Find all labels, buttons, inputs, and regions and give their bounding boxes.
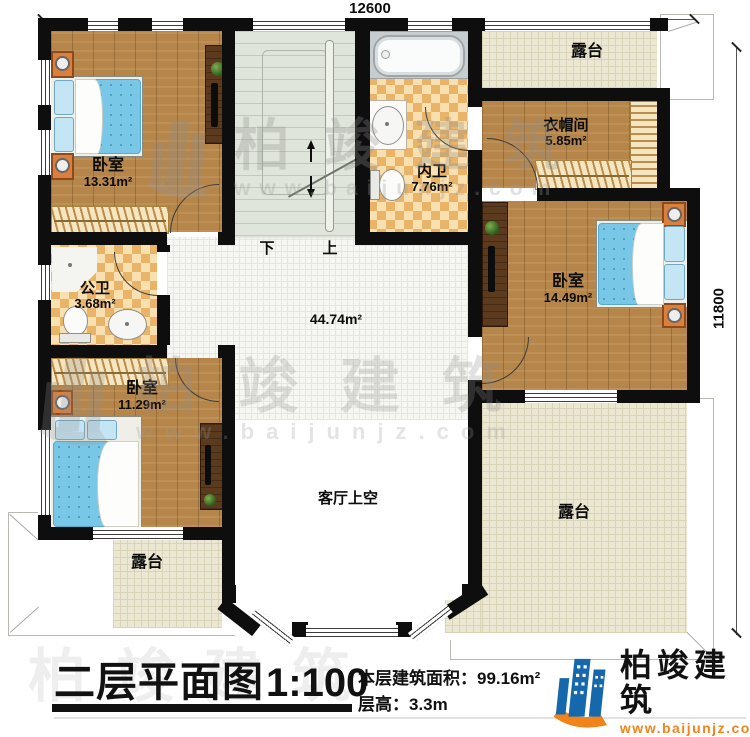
stair-arrow-down: [310, 176, 312, 190]
room-label-cloakroom: 衣帽间 5.85m²: [543, 118, 588, 148]
wardrobe-rod: [54, 372, 166, 374]
sink-drain-icon: [125, 322, 129, 326]
pillow: [54, 80, 74, 115]
room-area: 44.74m²: [310, 312, 362, 327]
plan-scale: 1:100: [266, 661, 368, 706]
room-area: 5.85m²: [543, 134, 588, 148]
stair-rail: [325, 40, 334, 232]
floor-area-label: 本层建筑面积：: [358, 669, 477, 688]
window: [88, 18, 118, 31]
window: [38, 60, 51, 105]
floor-area-value: 99.16m²: [477, 669, 540, 688]
wall-bath-right-lower: [468, 150, 482, 201]
company-name: 柏竣建筑: [620, 648, 750, 718]
window: [525, 390, 617, 403]
wall-innerbath-bottom: [355, 232, 482, 245]
lamp-icon: [667, 207, 682, 222]
stair-up-label: 上: [322, 241, 337, 257]
wall-bedroom-tl-bottom: [218, 232, 235, 245]
room-label-public-bath: 公卫 3.68m²: [74, 281, 115, 311]
stair-opening-outline: [262, 50, 328, 195]
pillow: [664, 264, 685, 300]
company-logo-icon: [545, 654, 620, 730]
floor-area-line: 本层建筑面积：99.16m²: [358, 666, 540, 692]
pillow: [54, 117, 74, 152]
room-name: 衣帽间: [543, 118, 588, 134]
room-area: 14.49m²: [544, 291, 592, 305]
bay-window-front: [306, 625, 398, 637]
wall-void-right: [468, 403, 482, 593]
bay-corner: [462, 584, 482, 596]
wall-bath-right-upper: [468, 31, 482, 107]
monitor-icon: [488, 246, 495, 292]
nightstand: [662, 202, 686, 227]
terrace-tr-wall-post: [650, 18, 668, 31]
terrace-bl-label: 露台: [131, 555, 163, 572]
stair-arrow-up: [310, 148, 312, 162]
monitor-icon: [211, 83, 218, 127]
room-name: 卧室: [84, 158, 132, 175]
plant-icon: [204, 494, 216, 506]
window: [38, 430, 51, 515]
nightstand: [51, 51, 74, 78]
wardrobe-rod: [54, 220, 166, 222]
terrace-br-label: 露台: [558, 505, 590, 522]
wall-bedroom-r-bottom: [617, 390, 700, 403]
nightstand: [662, 303, 686, 328]
floor-height-value: 3.3m: [409, 695, 448, 714]
wall-bedroom-r-left: [468, 201, 482, 337]
pillow: [55, 420, 85, 440]
wall-cloakroom-top: [482, 88, 657, 101]
sink-drain-icon: [385, 122, 389, 126]
void-label: 客厅上空: [318, 491, 378, 507]
wall-stair-bath: [355, 18, 370, 245]
terrace-tr-floor: [482, 31, 657, 88]
wall-cloakroom-right: [657, 88, 670, 195]
company-site: www.baijunjz.com: [620, 721, 750, 736]
window: [38, 265, 51, 300]
plant-icon: [485, 221, 499, 235]
room-name: 露台: [571, 44, 603, 61]
wall-bedroom-r-right: [687, 188, 700, 403]
floor-height-label: 层高：: [358, 695, 409, 714]
terrace-railing: [485, 18, 650, 31]
void-floor: [235, 403, 468, 640]
wall-publicbath-right: [157, 245, 170, 252]
closet-hanging-rail: [535, 160, 632, 190]
title-underline: [52, 704, 352, 712]
dim-line-right: [736, 48, 737, 635]
pillow: [87, 420, 117, 440]
hall-area-label: 44.74m²: [310, 312, 362, 327]
blanket: [632, 223, 664, 305]
plan-title-text: 二层平面图: [54, 648, 264, 708]
nightstand: [51, 390, 73, 415]
wall-bedroom-bl-top: [38, 345, 167, 358]
wall-bedroom-bl-bottom: [38, 527, 93, 540]
wall-bedroom-stair: [222, 18, 235, 245]
wardrobe: [51, 206, 169, 234]
company-logo-text: 柏竣建筑 www.baijunjz.com: [620, 648, 750, 737]
closet-shelving: [630, 101, 659, 190]
wall-bedroom-r-bottom: [468, 390, 525, 403]
lamp-icon: [55, 158, 70, 173]
window: [152, 18, 183, 31]
wall-bedroom-tl-bottom: [38, 232, 167, 245]
company-logo: 柏竣建筑 www.baijunjz.com: [545, 648, 750, 737]
room-name: 内卫: [411, 164, 452, 180]
stair-arrow-down-head: [307, 189, 315, 198]
dim-label-height: 11800: [711, 274, 728, 344]
room-label-bedroom-r: 卧室 14.49m²: [544, 274, 592, 305]
toilet: [379, 169, 405, 201]
room-label-bedroom-bl: 卧室 11.29m²: [118, 381, 166, 412]
pillow: [664, 226, 685, 262]
room-name: 露台: [558, 505, 590, 522]
stair-arrow-up-head: [307, 140, 315, 149]
terrace-bl-floor: [113, 540, 222, 628]
wall-publicbath-right: [157, 295, 170, 345]
plan-title: 二层平面图 1:100: [54, 648, 368, 708]
room-area: 3.68m²: [74, 297, 115, 311]
blanket: [97, 441, 139, 527]
stair-down-label: 下: [259, 241, 274, 257]
room-area: 11.29m²: [118, 398, 166, 412]
window: [38, 130, 51, 175]
room-name: 卧室: [544, 274, 592, 291]
window: [253, 18, 345, 31]
stair-direction: 下: [259, 241, 274, 257]
lamp-icon: [667, 308, 682, 323]
terrace-tr-label: 露台: [571, 44, 603, 61]
wall-bedroom-bl-bottom: [183, 527, 235, 540]
stair-direction: 上: [322, 241, 337, 257]
nightstand: [51, 153, 74, 180]
closet-rod: [538, 175, 629, 177]
wall-bedroom-bl-right: [222, 345, 235, 540]
room-label-inner-bath: 内卫 7.76m²: [411, 164, 452, 194]
room-name: 卧室: [118, 381, 166, 398]
room-name: 露台: [131, 555, 163, 572]
room-name: 公卫: [74, 281, 115, 297]
lamp-icon: [55, 395, 70, 410]
window: [93, 527, 183, 540]
dim-label-width: 12600: [330, 0, 410, 17]
window: [408, 18, 452, 31]
blanket: [75, 79, 103, 154]
bathtub-drain-icon: [381, 50, 390, 59]
room-label-bedroom-tl: 卧室 13.31m²: [84, 158, 132, 189]
room-area: 7.76m²: [411, 180, 452, 194]
floor-plan-page: { "dims": { "width": "12600", "height": …: [0, 0, 750, 728]
monitor-icon: [205, 445, 211, 485]
room-area: 13.31m²: [84, 175, 132, 189]
shower-drain-icon: [68, 263, 72, 267]
plan-stats: 本层建筑面积：99.16m² 层高：3.3m: [358, 666, 540, 719]
room-name: 客厅上空: [318, 491, 378, 507]
floor-height-line: 层高：3.3m: [358, 692, 540, 718]
wall-bedroom-r-top: [537, 188, 700, 201]
lamp-icon: [55, 56, 70, 71]
toilet-tank: [59, 333, 91, 343]
